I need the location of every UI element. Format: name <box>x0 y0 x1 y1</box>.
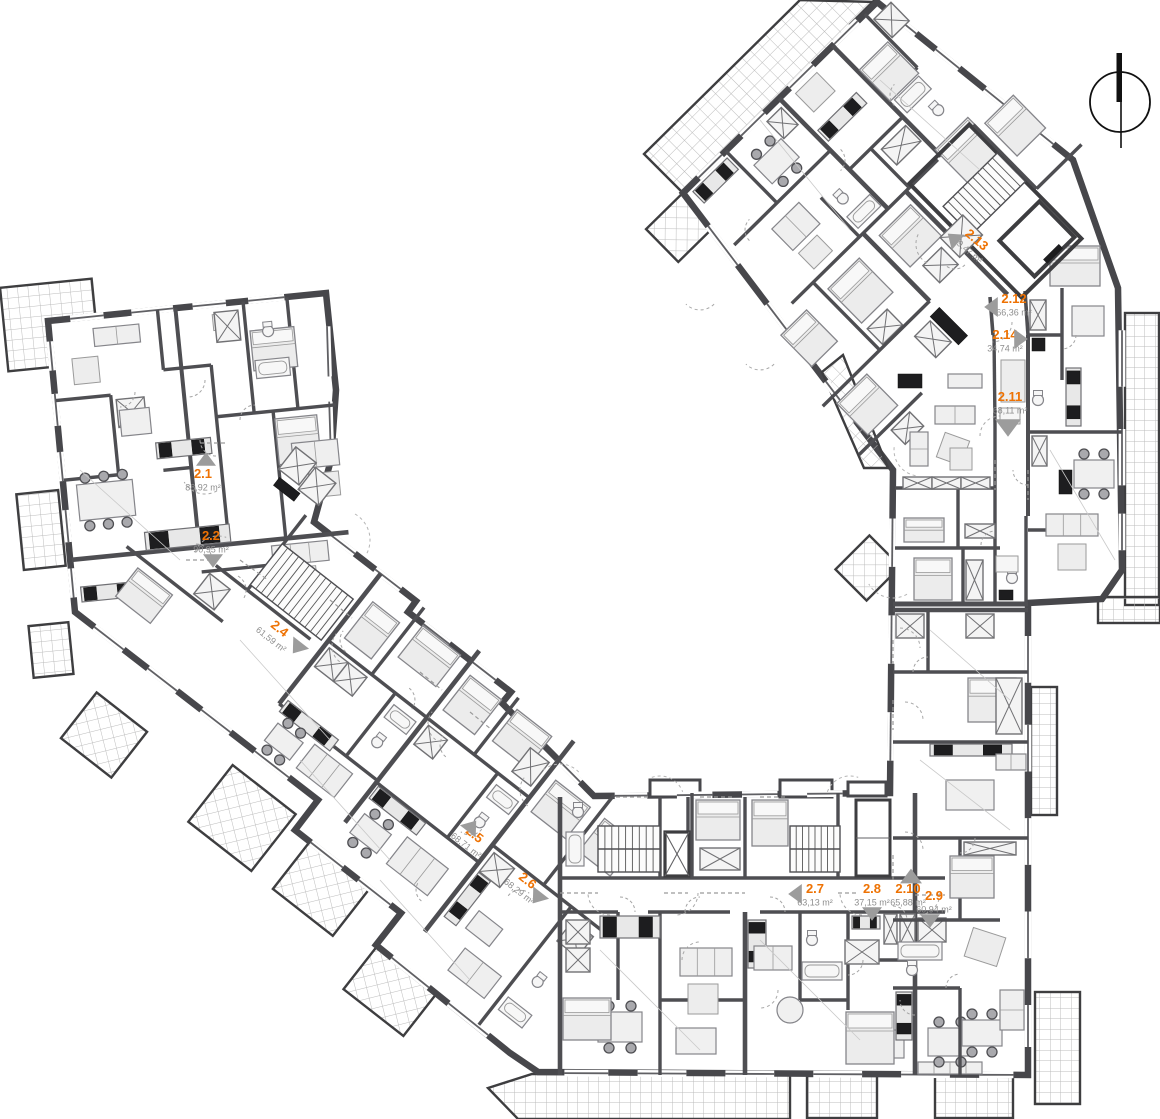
svg-text:66,36 m²: 66,36 m² <box>996 308 1032 318</box>
svg-text:88,92 m²: 88,92 m² <box>185 483 221 493</box>
svg-text:37,15 m²: 37,15 m² <box>854 898 890 908</box>
svg-text:90,95 m²: 90,95 m² <box>193 545 229 555</box>
svg-text:2.8: 2.8 <box>863 881 881 896</box>
svg-text:2.2: 2.2 <box>202 528 220 543</box>
svg-text:2.9: 2.9 <box>925 888 943 903</box>
svg-text:63,13 m²: 63,13 m² <box>797 898 833 908</box>
svg-text:2.12: 2.12 <box>1001 291 1026 306</box>
svg-text:2.7: 2.7 <box>806 881 824 896</box>
svg-text:2.11: 2.11 <box>998 389 1023 404</box>
svg-text:60,94 m²: 60,94 m² <box>916 905 952 915</box>
svg-text:68,11 m²: 68,11 m² <box>993 406 1028 416</box>
svg-text:2.1: 2.1 <box>194 466 212 481</box>
